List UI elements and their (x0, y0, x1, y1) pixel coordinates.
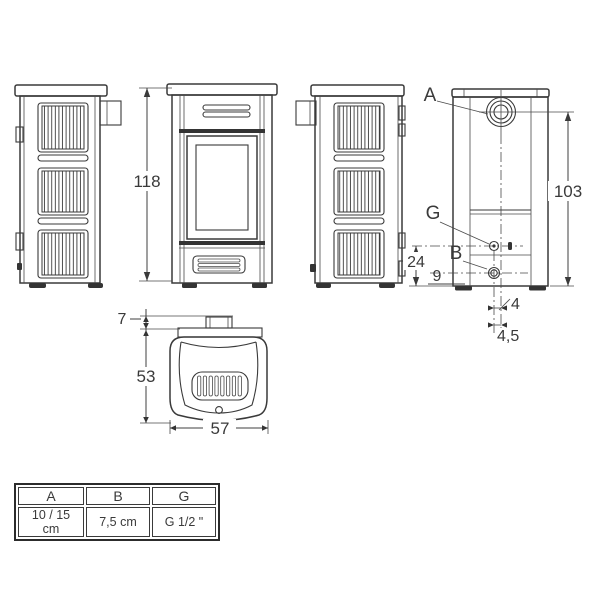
top-grille (192, 372, 248, 400)
dim-b-height: 9 (428, 268, 465, 285)
spec-header-g: G (152, 487, 216, 505)
label-fitting-g: G (426, 203, 489, 244)
label-g-text: G (426, 203, 441, 224)
top-view (170, 317, 267, 421)
spec-value-g: G 1/2 " (152, 507, 216, 537)
dim-24-label: 24 (407, 254, 425, 271)
side-view-left (15, 85, 121, 288)
rear-panel-top (178, 328, 262, 337)
bolt-detail (508, 242, 512, 250)
spec-table-header-row: A B G (18, 487, 216, 505)
spec-table-wrap: A B G 10 / 15 cm 7,5 cm G 1/2 " (14, 483, 220, 541)
bottom-vent (193, 256, 245, 273)
g-fitting (412, 242, 523, 251)
flue-pipe-top (206, 317, 232, 328)
dim-53-label: 53 (137, 367, 156, 386)
dim-118-label: 118 (133, 172, 160, 191)
slat-panels-left-view (38, 103, 88, 278)
flue-stub-left-view (100, 101, 121, 125)
door-glass (196, 145, 248, 230)
dim-7-label: 7 (118, 311, 127, 328)
knob-top (216, 407, 223, 414)
front-view (167, 84, 277, 288)
spec-value-b: 7,5 cm (86, 507, 150, 537)
dim-g-height: 24 (403, 246, 454, 286)
technical-drawing-sheet: 118 103 24 9 4 (0, 0, 600, 600)
b-fitting (430, 251, 528, 334)
label-fitting-b: B (450, 243, 487, 269)
dim-offset-lower: 4,5 (488, 322, 519, 345)
dim-9-label: 9 (433, 268, 442, 285)
dim-overall-height: 118 (128, 88, 172, 281)
spec-header-a: A (18, 487, 84, 505)
top-air-slots (203, 105, 250, 117)
dim-width: 57 (170, 419, 268, 438)
dim-flue-height: 103 (523, 112, 588, 286)
dim-57-label: 57 (211, 419, 230, 438)
spec-header-b: B (86, 487, 150, 505)
label-b-text: B (450, 243, 463, 264)
label-a-text: A (424, 85, 437, 106)
spec-value-a: 10 / 15 cm (18, 507, 84, 537)
dim-4-label: 4 (511, 296, 520, 313)
slat-panels-right-view (334, 103, 384, 278)
dim-4-5-label: 4,5 (497, 328, 519, 345)
side-view-right (296, 85, 405, 288)
spec-table-value-row: 10 / 15 cm 7,5 cm G 1/2 " (18, 507, 216, 537)
dim-103-label: 103 (554, 182, 582, 201)
dim-depth: 7 53 (118, 309, 233, 423)
spec-table: A B G 10 / 15 cm 7,5 cm G 1/2 " (14, 483, 220, 541)
fire-door (187, 136, 257, 239)
dim-offset-upper: 4 (488, 296, 520, 313)
flue-stub-right-view (296, 101, 316, 125)
